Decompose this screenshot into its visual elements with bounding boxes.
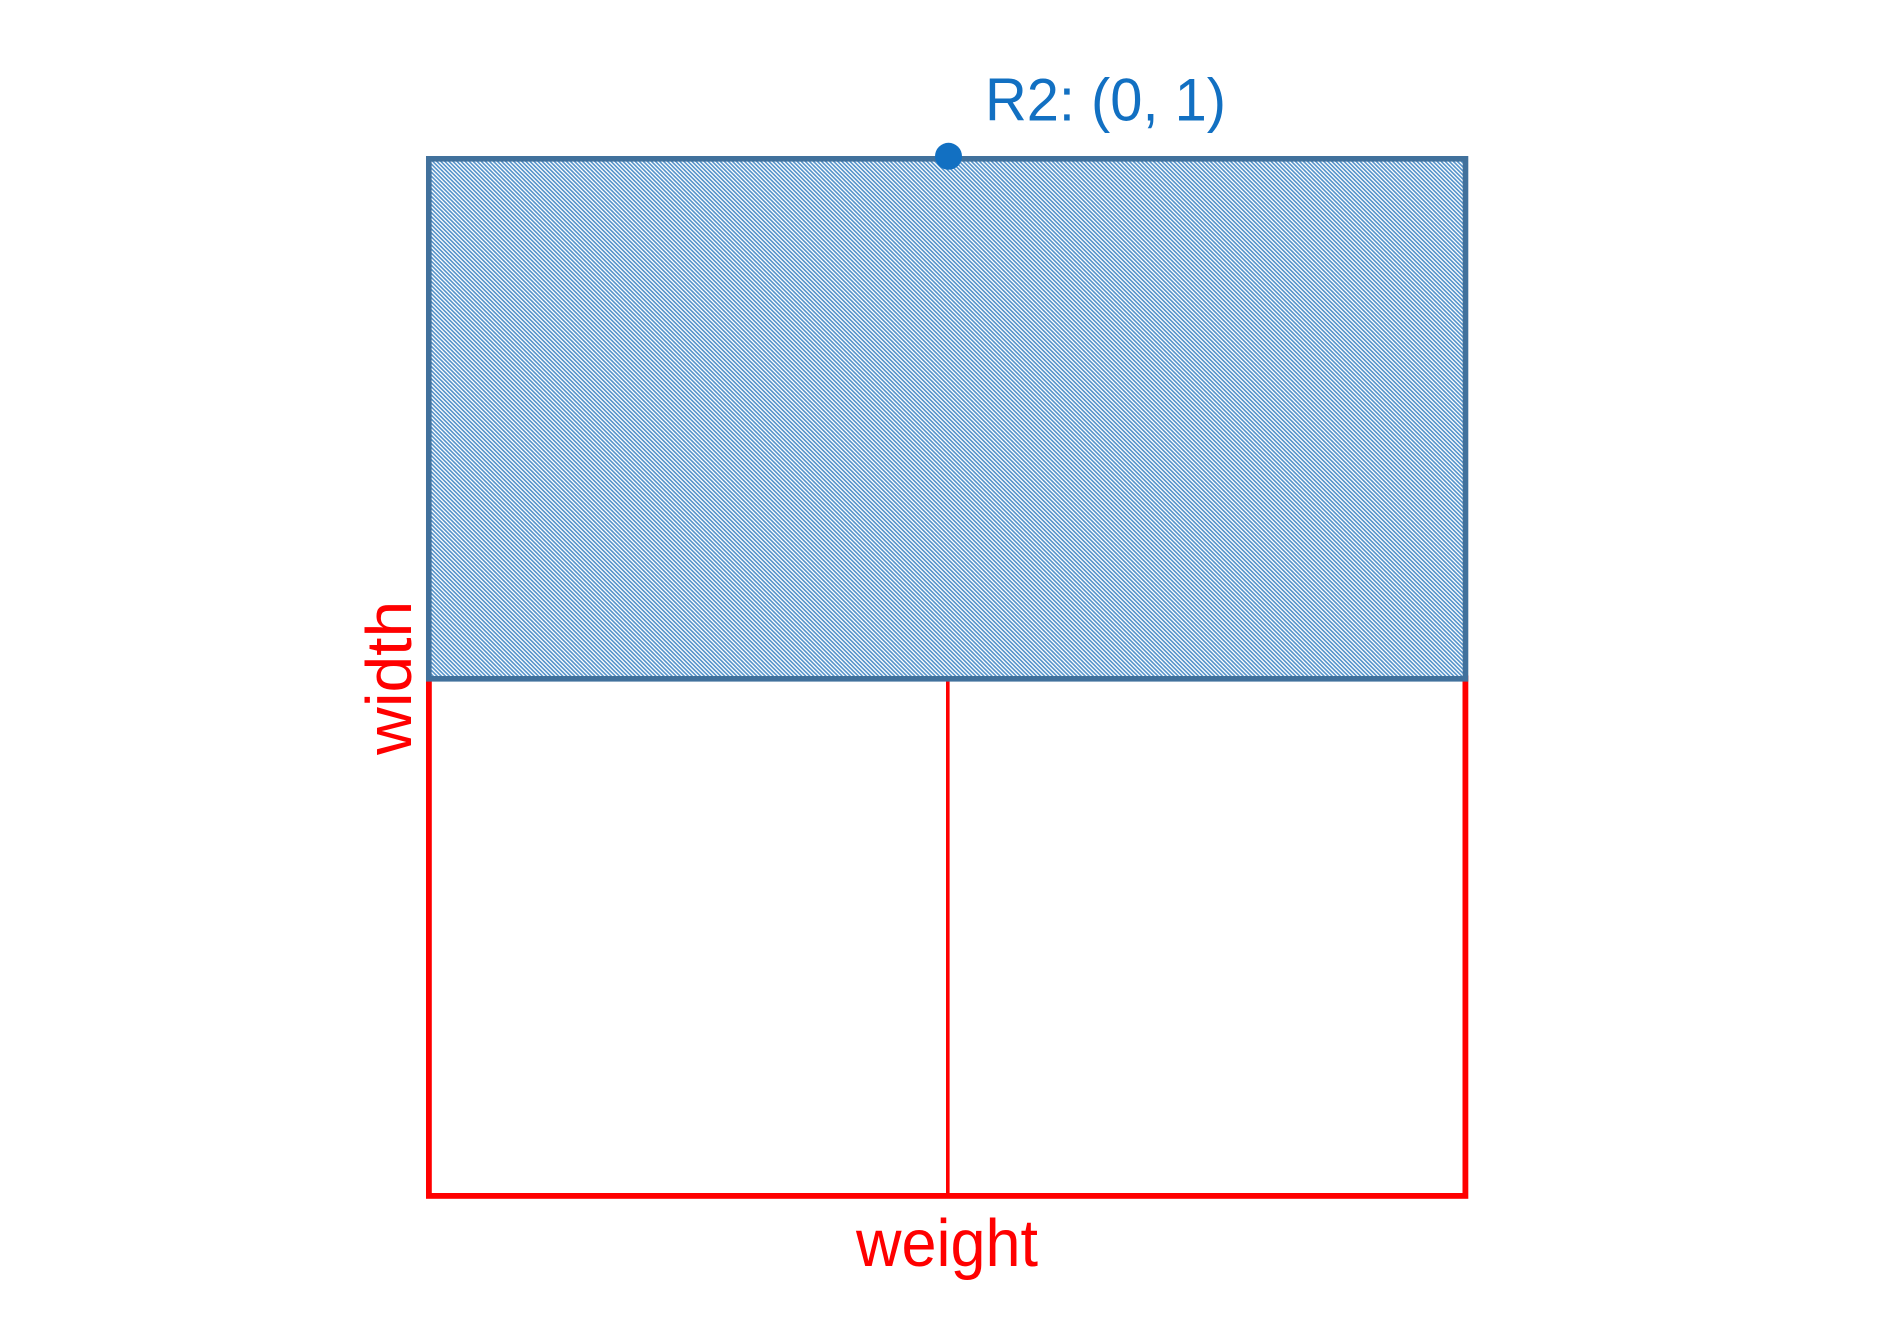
svg-text:weight: weight xyxy=(855,1206,1038,1281)
svg-text:R2: (0, 1): R2: (0, 1) xyxy=(985,67,1226,134)
svg-text:width: width xyxy=(353,601,425,756)
